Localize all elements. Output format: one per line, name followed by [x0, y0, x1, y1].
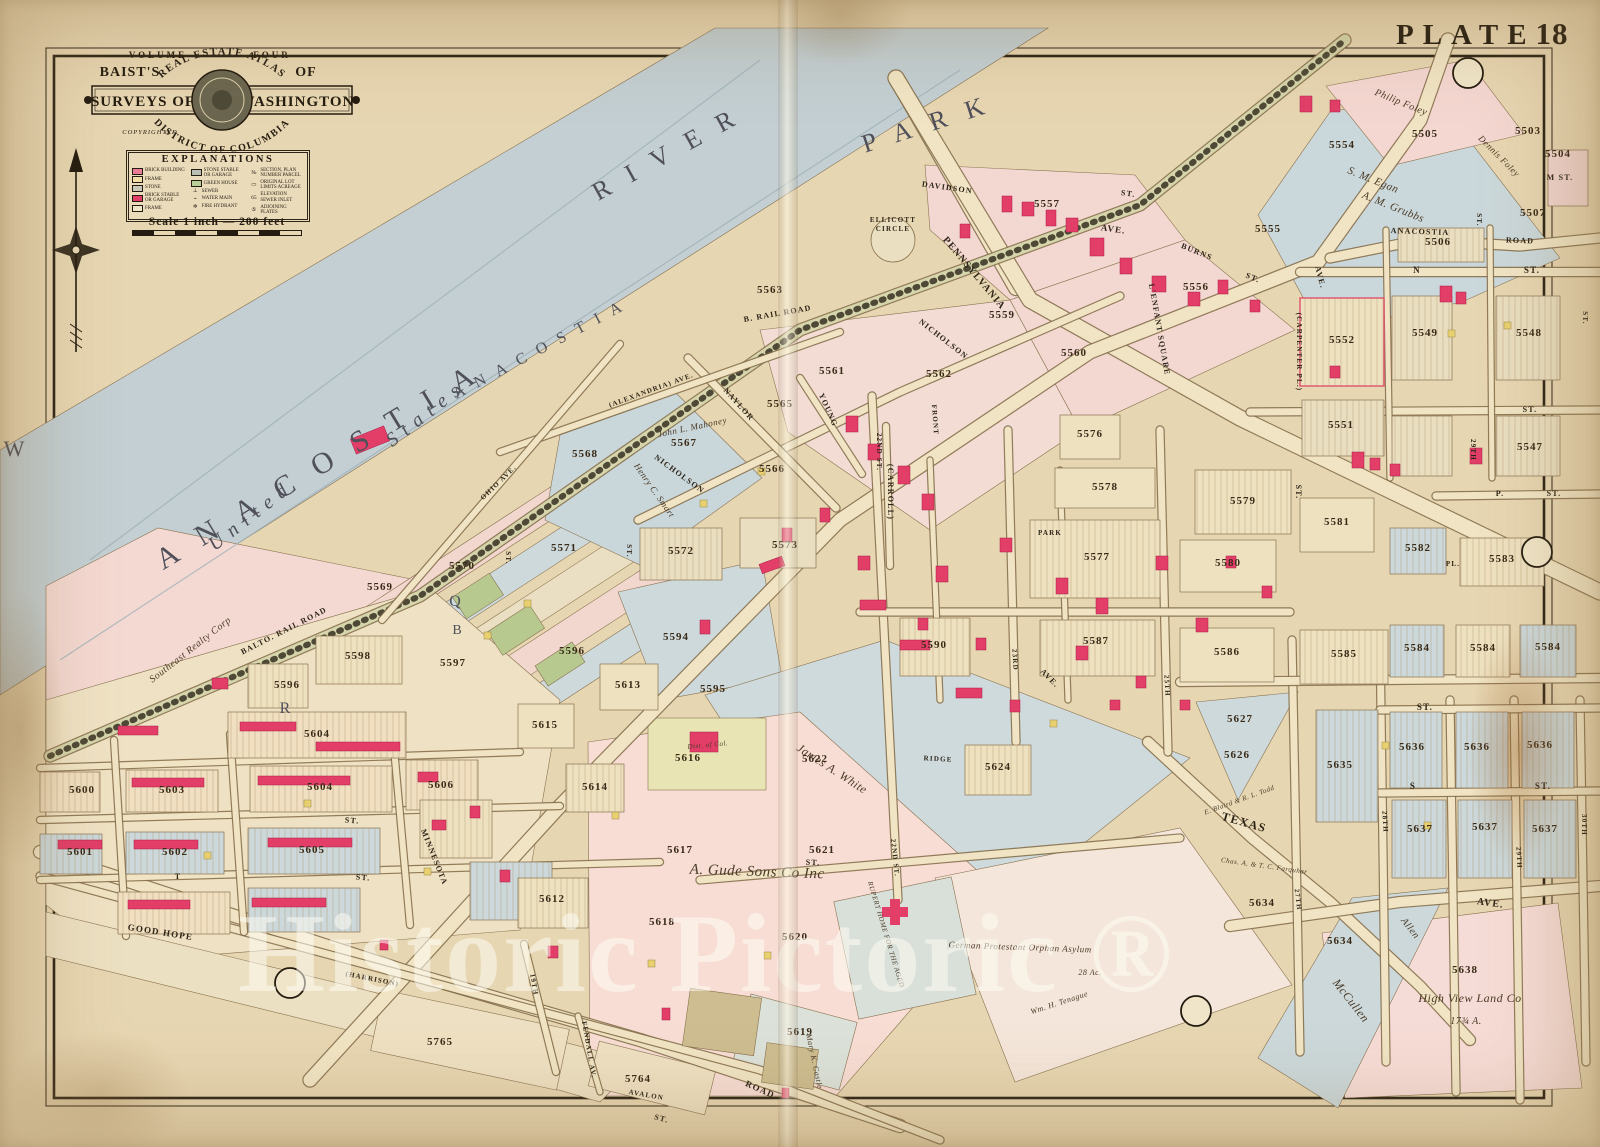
street-label: ST. — [1524, 265, 1540, 275]
frame-building — [424, 868, 431, 875]
adjoining-plate-circle — [275, 968, 305, 998]
square-number: 5549 — [1412, 327, 1438, 339]
square-number: 5572 — [668, 545, 694, 557]
brick-building — [1218, 280, 1228, 294]
brick-building — [1440, 286, 1452, 302]
plate-number: PLATE18 — [1396, 16, 1569, 52]
square-number: 5584 — [1404, 642, 1430, 654]
brick-building — [118, 726, 158, 735]
brick-building — [1002, 196, 1012, 212]
brick-building — [960, 224, 970, 238]
square-number: 5618 — [649, 916, 675, 928]
street-label: 23RD — [1010, 649, 1019, 671]
square-number: 5601 — [67, 846, 93, 858]
scale-label: Scale 1 inch — 200 feet — [124, 216, 310, 228]
square-number: 5573 — [772, 539, 798, 551]
square-number: 5605 — [299, 844, 325, 856]
block-lots — [1524, 800, 1576, 878]
cross-building — [882, 907, 908, 917]
block-lots — [1392, 800, 1446, 878]
square-number: 5615 — [532, 719, 558, 731]
square-number: 5560 — [1061, 347, 1087, 359]
brick-building — [782, 1088, 789, 1098]
square-number: 5634 — [1249, 897, 1275, 909]
brick-building — [976, 638, 986, 650]
legend-swatch — [132, 176, 143, 183]
brick-building — [432, 820, 446, 830]
square-number: 5636 — [1527, 739, 1553, 751]
square-number: 5613 — [615, 679, 641, 691]
legend-label: SECTION, PLAN NUMBER PARCEL — [260, 168, 304, 179]
street-label: NAYLOR — [722, 386, 756, 423]
brick-building — [1010, 700, 1020, 712]
street-label: (CARPENTER PL.) — [1295, 313, 1303, 392]
brick-building — [700, 620, 710, 634]
square-number: 5594 — [663, 631, 689, 643]
frame-building — [204, 852, 211, 859]
legend-swatch — [191, 180, 202, 187]
square-number: 5626 — [1224, 749, 1250, 761]
title-surveys-of: SURVEYS OF — [91, 94, 195, 110]
legend-item: ⊥SEWER — [191, 188, 246, 194]
street-label: 25TH — [1162, 675, 1171, 697]
square-number: 5570 — [449, 560, 475, 572]
square-number: 5579 — [1230, 495, 1256, 507]
banner-finial — [352, 96, 360, 104]
street-label: ST. — [344, 815, 360, 825]
frame-building — [764, 952, 771, 959]
brick-building — [662, 1008, 670, 1020]
frame-building — [1382, 742, 1389, 749]
frame-building — [524, 600, 531, 607]
brick-building — [860, 600, 886, 610]
adjoining-plate-circle — [1522, 537, 1552, 567]
street-label: ELLICOTT — [870, 216, 916, 224]
physical-feature-label: R — [280, 700, 291, 717]
brick-building — [316, 742, 400, 751]
brick-building — [1110, 700, 1120, 710]
square-number: 5603 — [159, 784, 185, 796]
legend-swatch — [132, 168, 143, 175]
square-number: 5554 — [1329, 139, 1355, 151]
square-number: 5764 — [625, 1073, 651, 1085]
plate-word: PLATE — [1396, 19, 1536, 52]
road-face — [1380, 708, 1600, 710]
brick-building — [898, 466, 910, 484]
physical-feature-label: W — [4, 436, 25, 461]
square-number: 5598 — [345, 650, 371, 662]
street-label: ST. — [1417, 702, 1433, 712]
frame-building — [484, 632, 491, 639]
legend-item: FRAME — [132, 205, 187, 212]
square-number: 5602 — [162, 846, 188, 858]
frame-building — [648, 960, 655, 967]
square-number: 5606 — [428, 779, 454, 791]
street-label: ST. — [1581, 311, 1589, 324]
square-number: 5627 — [1227, 713, 1253, 725]
square-number: 5595 — [700, 683, 726, 695]
legend-label: BRICK STABLE OR GARAGE — [145, 193, 187, 204]
legend-label: STONE — [145, 185, 161, 190]
square-number: 5635 — [1327, 759, 1353, 771]
legend-item: BRICK BUILDING — [132, 168, 187, 175]
street-label: P. — [1496, 489, 1505, 498]
square-number: 5571 — [551, 542, 577, 554]
owner-name: 17¾ A. — [1450, 1016, 1481, 1027]
brick-building — [1330, 100, 1340, 112]
title-baists: BAIST'S — [100, 65, 161, 80]
legend-item: №SECTION, PLAN NUMBER PARCEL — [249, 168, 304, 179]
square-number: 5563 — [757, 284, 783, 296]
zone — [1196, 692, 1298, 800]
legend-label: BRICK BUILDING — [145, 168, 185, 173]
scale-block: Scale 1 inch — 200 feet — [124, 216, 310, 236]
square-number: 5583 — [1489, 553, 1515, 565]
legend-symbol: ⌁ — [191, 196, 200, 202]
street-label: 29TH — [1469, 439, 1477, 461]
legend-columns: BRICK BUILDINGFRAMESTONEBRICK STABLE OR … — [132, 166, 304, 217]
legend-item: 65ELEVATION SEWER INLET — [249, 192, 304, 203]
square-number: 5507 — [1520, 207, 1546, 219]
brick-building — [1330, 366, 1340, 378]
square-number: 5590 — [921, 639, 947, 651]
square-number: 5614 — [582, 781, 608, 793]
street-label: 22ND ST. — [875, 433, 883, 471]
street-label: ST. — [1535, 781, 1551, 791]
legend-item: STONE — [132, 185, 187, 192]
brick-building — [1300, 96, 1312, 112]
brick-building — [956, 688, 982, 698]
brick-building — [380, 940, 388, 950]
owner-name: High View Land Co — [1417, 991, 1521, 1005]
square-number: 5636 — [1399, 741, 1425, 753]
legend-label: FRAME — [145, 177, 162, 182]
brick-building — [1196, 618, 1208, 632]
legend-item: BRICK STABLE OR GARAGE — [132, 193, 187, 204]
square-number: 5634 — [1327, 935, 1353, 947]
legend-swatch — [191, 169, 202, 176]
brick-building — [240, 722, 296, 731]
square-number: 5604 — [307, 781, 333, 793]
square-number: 5596 — [274, 679, 300, 691]
square-number: 5548 — [1516, 327, 1542, 339]
legend-label: STONE STABLE OR GARAGE — [204, 168, 246, 179]
street-label: B. RAIL ROAD — [743, 303, 812, 324]
brick-building — [1390, 464, 1400, 476]
physical-feature-label: Q — [449, 593, 461, 610]
compass-rose — [52, 148, 100, 352]
legend-title: EXPLANATIONS — [132, 154, 304, 165]
brick-building — [470, 806, 480, 818]
street-label: 29TH — [1514, 847, 1523, 869]
square-number: 5584 — [1535, 641, 1561, 653]
adjoining-plate-circle — [1453, 58, 1483, 88]
square-number: 5585 — [1331, 648, 1357, 660]
legend-label: FRAME — [145, 206, 162, 211]
square-number: 5568 — [572, 448, 598, 460]
frame-building — [612, 812, 619, 819]
brick-building — [212, 678, 228, 689]
legend-box: EXPLANATIONS BRICK BUILDINGFRAMESTONEBRI… — [128, 152, 308, 220]
legend-item: ⑤ADJOINING PLATES — [249, 205, 304, 216]
brick-building — [1066, 218, 1078, 232]
square-number: 5503 — [1515, 125, 1541, 137]
square-number: 5617 — [667, 844, 693, 856]
brick-building — [922, 494, 934, 510]
square-number: 5551 — [1328, 419, 1354, 431]
road-face — [1436, 494, 1600, 496]
square-number: 5624 — [985, 761, 1011, 773]
square-number: 5577 — [1084, 551, 1110, 563]
frame-building — [1050, 720, 1057, 727]
frame-building — [1504, 322, 1511, 329]
road-face — [1490, 228, 1492, 478]
brick-building — [858, 556, 870, 570]
square-number: 5578 — [1092, 481, 1118, 493]
square-number: 5584 — [1470, 642, 1496, 654]
square-number: 5581 — [1324, 516, 1350, 528]
square-number: 5561 — [819, 365, 845, 377]
street-label: ROAD — [1506, 236, 1535, 246]
title-of: OF — [295, 65, 316, 80]
block-lots — [1458, 800, 1512, 878]
road-face — [1292, 640, 1300, 1052]
brick-building — [1250, 300, 1260, 312]
square-number: 5604 — [304, 728, 330, 740]
legend-swatch — [132, 205, 143, 212]
square-number: 5637 — [1407, 823, 1433, 835]
brick-building — [252, 898, 326, 907]
frame-building — [700, 500, 707, 507]
scale-bar — [132, 230, 302, 236]
legend-label: WATER MAIN — [202, 196, 233, 201]
square-number: 5636 — [1464, 741, 1490, 753]
legend-label: GREEN HOUSE — [204, 181, 238, 186]
legend-col-2: STONE STABLE OR GARAGEGREEN HOUSE⊥SEWER⌁… — [191, 166, 246, 217]
brick-building — [1000, 538, 1012, 552]
brick-building — [258, 776, 350, 785]
square-number: 5582 — [1405, 542, 1431, 554]
legend-item: GREEN HOUSE — [191, 180, 246, 187]
plate-num: 18 — [1536, 16, 1569, 52]
brick-building — [1262, 586, 1272, 598]
square-number: 5637 — [1532, 823, 1558, 835]
square-number: 5580 — [1215, 557, 1241, 569]
street-label: ST. — [653, 1112, 670, 1125]
brick-building — [1136, 676, 1146, 688]
street-label: 28TH — [1380, 811, 1389, 833]
legend-symbol: ▭ — [249, 182, 258, 188]
square-number: 5586 — [1214, 646, 1240, 658]
legend-label: ADJOINING PLATES — [260, 205, 304, 216]
block-lots — [1392, 416, 1452, 476]
street-label: T — [175, 872, 182, 881]
street-label: ST. — [1547, 489, 1562, 498]
owner-name: 28 Ac. — [1078, 968, 1101, 977]
street-label: N — [1413, 265, 1421, 275]
adjoining-plate-circle — [1181, 996, 1211, 1026]
square-number: 5765 — [427, 1036, 453, 1048]
street-label: RIDGE — [923, 754, 952, 764]
street-label: CIRCLE — [876, 225, 910, 233]
brick-building — [1188, 292, 1200, 306]
square-number: 5612 — [539, 893, 565, 905]
legend-label: ELEVATION SEWER INLET — [260, 192, 304, 203]
brick-building — [548, 946, 558, 958]
square-number: 5556 — [1183, 281, 1209, 293]
legend-swatch — [132, 185, 143, 192]
street-label: ST. — [625, 544, 633, 557]
square-number: 5596 — [559, 645, 585, 657]
legend-symbol: № — [249, 170, 258, 176]
brick-building — [500, 870, 510, 882]
legend-symbol: 65 — [249, 195, 258, 201]
square-number: 5621 — [809, 844, 835, 856]
green-patch — [682, 988, 761, 1055]
legend-label: FIRE HYDRANT — [202, 204, 238, 209]
street-label: S — [1410, 781, 1416, 791]
title-washington: WASHINGTON — [240, 94, 355, 110]
brick-building — [1090, 238, 1104, 256]
street-label: AVE. — [1476, 896, 1504, 911]
brick-building — [1022, 202, 1034, 216]
square-number: 5620 — [782, 931, 808, 943]
street-label: OHIO AVE. — [479, 463, 518, 501]
square-number: 5565 — [767, 398, 793, 410]
brick-building — [1156, 556, 1168, 570]
brick-building — [918, 618, 928, 630]
legend-symbol: ⑤ — [249, 207, 258, 213]
brick-building — [846, 416, 858, 432]
square-number: 5559 — [989, 309, 1015, 321]
square-number: 5569 — [367, 581, 393, 593]
legend-col-1: BRICK BUILDINGFRAMESTONEBRICK STABLE OR … — [132, 166, 187, 217]
physical-feature-label: B — [452, 623, 461, 638]
square-number: 5505 — [1412, 128, 1438, 140]
street-label: PARK — [1038, 529, 1062, 537]
brick-building — [820, 508, 830, 522]
legend-item: STONE STABLE OR GARAGE — [191, 168, 246, 179]
brick-building — [1456, 292, 1466, 304]
legend-item: ⌁WATER MAIN — [191, 196, 246, 202]
square-number: 5587 — [1083, 635, 1109, 647]
frame-building — [304, 800, 311, 807]
brick-building — [128, 900, 190, 909]
brick-building — [1120, 258, 1132, 274]
atlas-plate-18-scan: 5503550455055506550755475548554955515552… — [0, 0, 1600, 1147]
brick-building — [1076, 646, 1088, 660]
square-number: 5597 — [440, 657, 466, 669]
brick-building — [936, 566, 948, 582]
brick-building — [1056, 578, 1068, 594]
square-number: 5547 — [1517, 441, 1543, 453]
block-lots — [1040, 620, 1155, 676]
frame-building — [1448, 330, 1455, 337]
square-number: 5637 — [1472, 821, 1498, 833]
legend-label: ORIGINAL LOT LIMITS ACREAGE — [260, 180, 304, 191]
legend-swatch — [132, 195, 143, 202]
brick-building — [1046, 210, 1056, 226]
seal-core — [212, 90, 232, 110]
legend-col-3: №SECTION, PLAN NUMBER PARCEL▭ORIGINAL LO… — [249, 166, 304, 217]
brick-building — [1352, 452, 1364, 468]
legend-symbol: ⊥ — [191, 188, 200, 194]
square-number: 5552 — [1329, 334, 1355, 346]
street-label: ST. — [355, 872, 371, 882]
square-number: 5616 — [675, 752, 701, 764]
brick-building — [1370, 458, 1380, 470]
road-face — [1160, 430, 1168, 752]
street-label: (CARROLL) — [886, 464, 895, 520]
square-number: 5506 — [1425, 236, 1451, 248]
square-number: 5600 — [69, 784, 95, 796]
square-number: 5557 — [1034, 198, 1060, 210]
legend-item: ▭ORIGINAL LOT LIMITS ACREAGE — [249, 180, 304, 191]
street-label: ST. — [504, 551, 512, 564]
block-lots — [248, 888, 360, 932]
compass-arrowhead — [69, 148, 83, 172]
banner-finial — [84, 96, 92, 104]
legend-item: FRAME — [132, 176, 187, 183]
square-number: 5566 — [759, 463, 785, 475]
street-label: ST. — [1475, 213, 1483, 226]
square-number: 5567 — [671, 437, 697, 449]
legend-explanations: EXPLANATIONS BRICK BUILDINGFRAMESTONEBRI… — [126, 150, 310, 222]
legend-symbol: ✲ — [191, 204, 200, 210]
legend-label: SEWER — [202, 189, 219, 194]
square-number: 5638 — [1452, 964, 1478, 976]
street-label: 30TH — [1580, 814, 1588, 836]
road-face — [1380, 791, 1600, 793]
street-label: PL. — [1446, 560, 1460, 568]
zone — [648, 718, 766, 790]
street-label: ST. — [1523, 405, 1538, 414]
brick-building — [1096, 598, 1108, 614]
brick-building — [1180, 700, 1190, 710]
square-number: 5576 — [1077, 428, 1103, 440]
square-number: 5504 — [1545, 148, 1571, 160]
square-number: 5555 — [1255, 223, 1281, 235]
street-label: ST. — [1294, 485, 1303, 500]
compass-hub — [72, 246, 80, 254]
street-label: M ST. — [1547, 173, 1574, 182]
square-number: 5562 — [926, 368, 952, 380]
legend-item: ✲FIRE HYDRANT — [191, 204, 246, 210]
